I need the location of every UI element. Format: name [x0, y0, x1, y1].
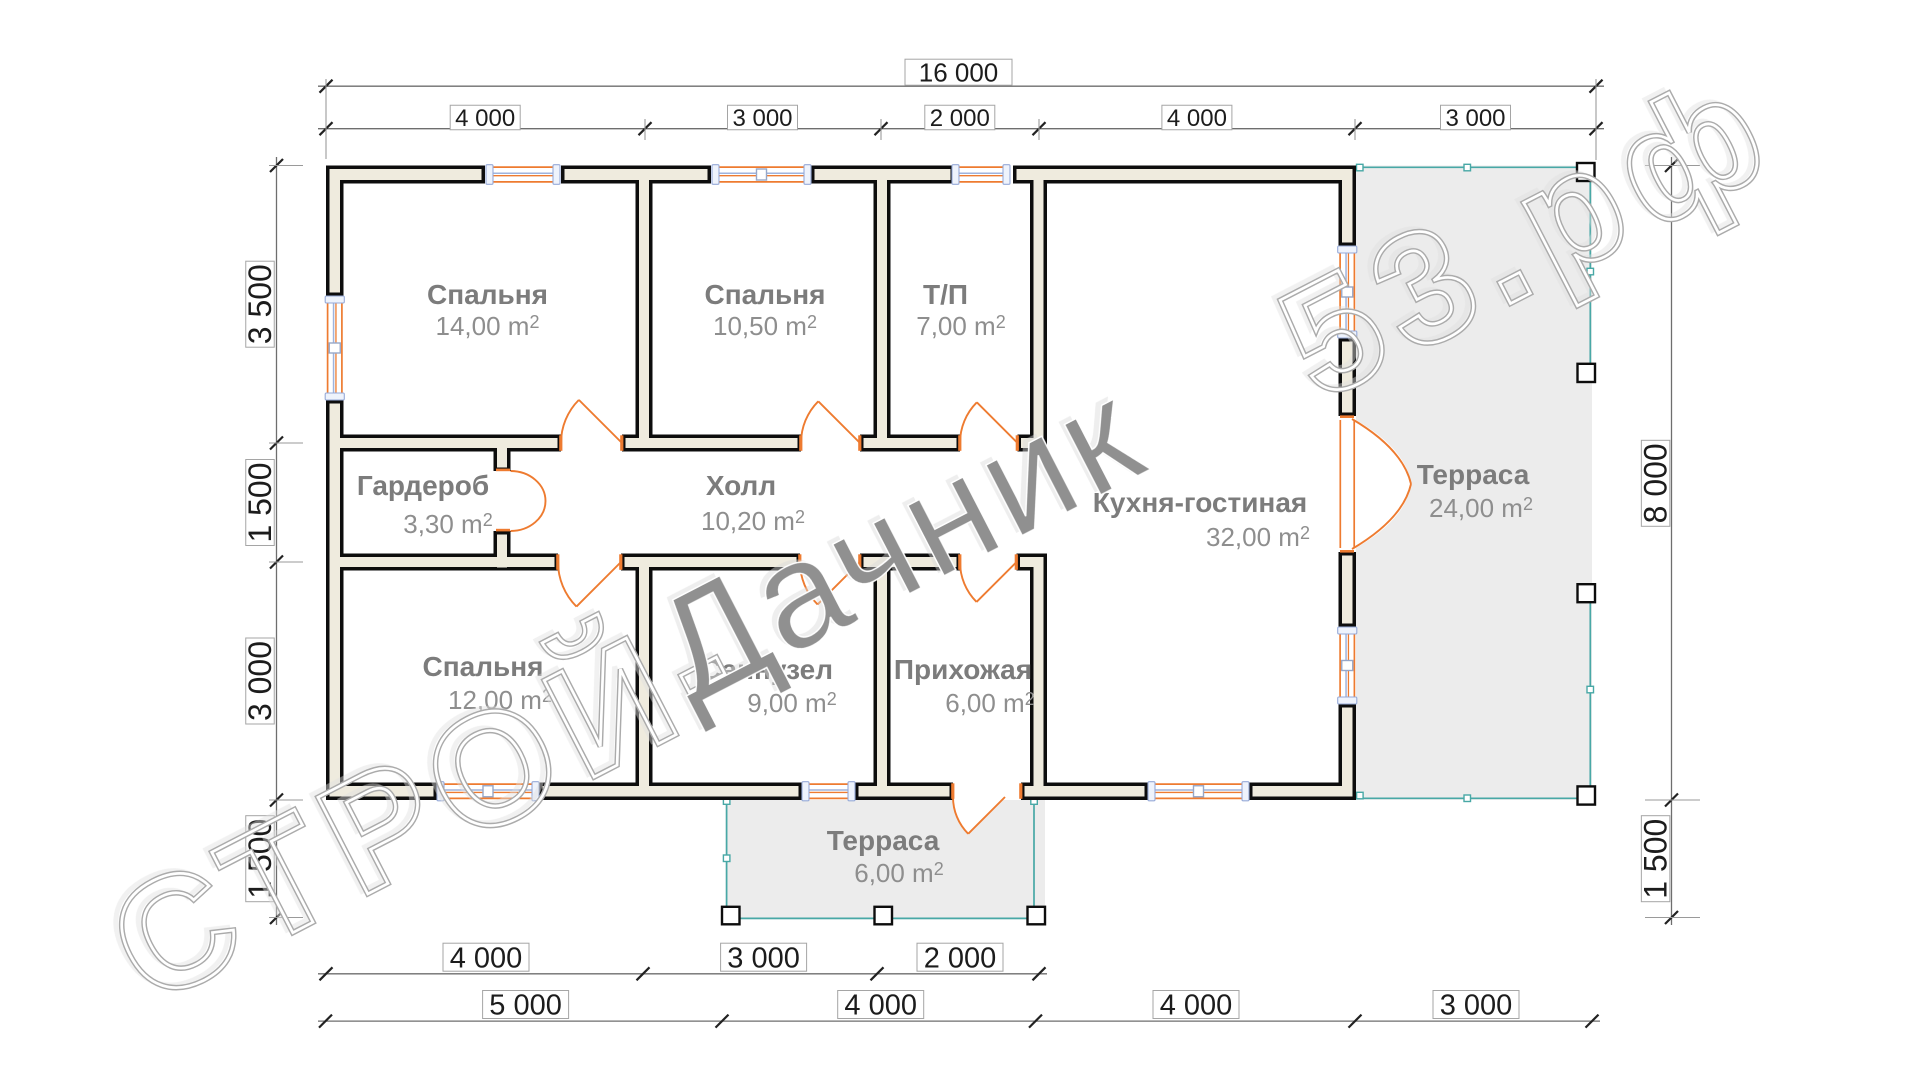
svg-text:Терраса: Терраса	[1417, 459, 1530, 490]
svg-text:5 000: 5 000	[489, 990, 562, 1022]
svg-text:2 000: 2 000	[924, 942, 997, 974]
svg-text:3,30 m2: 3,30 m2	[403, 509, 493, 539]
svg-text:4 000: 4 000	[450, 942, 523, 974]
svg-text:Терраса: Терраса	[827, 825, 940, 856]
svg-text:Прихожая: Прихожая	[894, 654, 1032, 685]
svg-text:14,00 m2: 14,00 m2	[436, 311, 540, 341]
svg-text:4 000: 4 000	[455, 105, 515, 132]
svg-text:3 000: 3 000	[727, 942, 800, 974]
svg-text:3 000: 3 000	[242, 641, 278, 721]
svg-text:Спальня: Спальня	[427, 279, 548, 310]
svg-text:8 000: 8 000	[1638, 443, 1674, 523]
svg-text:6,00 m2: 6,00 m2	[945, 688, 1035, 718]
svg-text:Гардероб: Гардероб	[357, 470, 489, 501]
svg-text:16 000: 16 000	[919, 57, 999, 87]
svg-text:6,00 m2: 6,00 m2	[854, 858, 944, 888]
svg-text:Холл: Холл	[706, 470, 776, 501]
svg-text:3 000: 3 000	[1445, 105, 1505, 132]
svg-text:2 000: 2 000	[930, 105, 990, 132]
svg-text:1 500: 1 500	[1638, 819, 1674, 899]
svg-text:Т/П: Т/П	[923, 279, 968, 310]
svg-text:4 000: 4 000	[1167, 105, 1227, 132]
svg-text:3 000: 3 000	[732, 105, 792, 132]
svg-text:4 000: 4 000	[1160, 990, 1233, 1022]
svg-text:3 500: 3 500	[242, 264, 278, 344]
svg-text:24,00 m2: 24,00 m2	[1429, 493, 1533, 523]
svg-text:4 000: 4 000	[844, 990, 917, 1022]
svg-text:Спальня: Спальня	[705, 279, 826, 310]
svg-text:32,00 m2: 32,00 m2	[1206, 522, 1310, 552]
svg-text:7,00 m2: 7,00 m2	[916, 311, 1006, 341]
svg-text:10,50 m2: 10,50 m2	[713, 311, 817, 341]
svg-text:1 500: 1 500	[242, 462, 278, 542]
svg-text:3 000: 3 000	[1440, 990, 1513, 1022]
